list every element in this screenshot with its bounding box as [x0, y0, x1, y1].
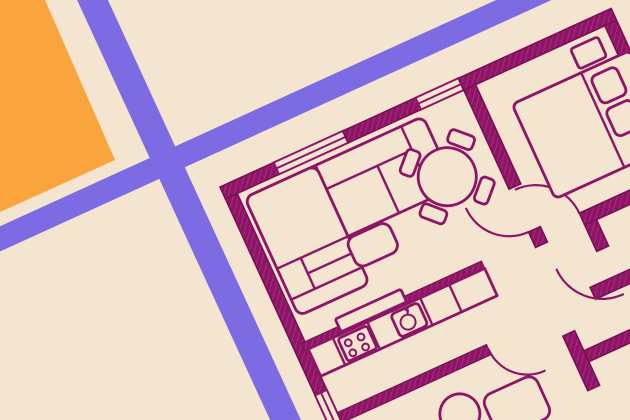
illustration-canvas — [0, 0, 630, 420]
floor-plan-illustration — [0, 0, 630, 420]
